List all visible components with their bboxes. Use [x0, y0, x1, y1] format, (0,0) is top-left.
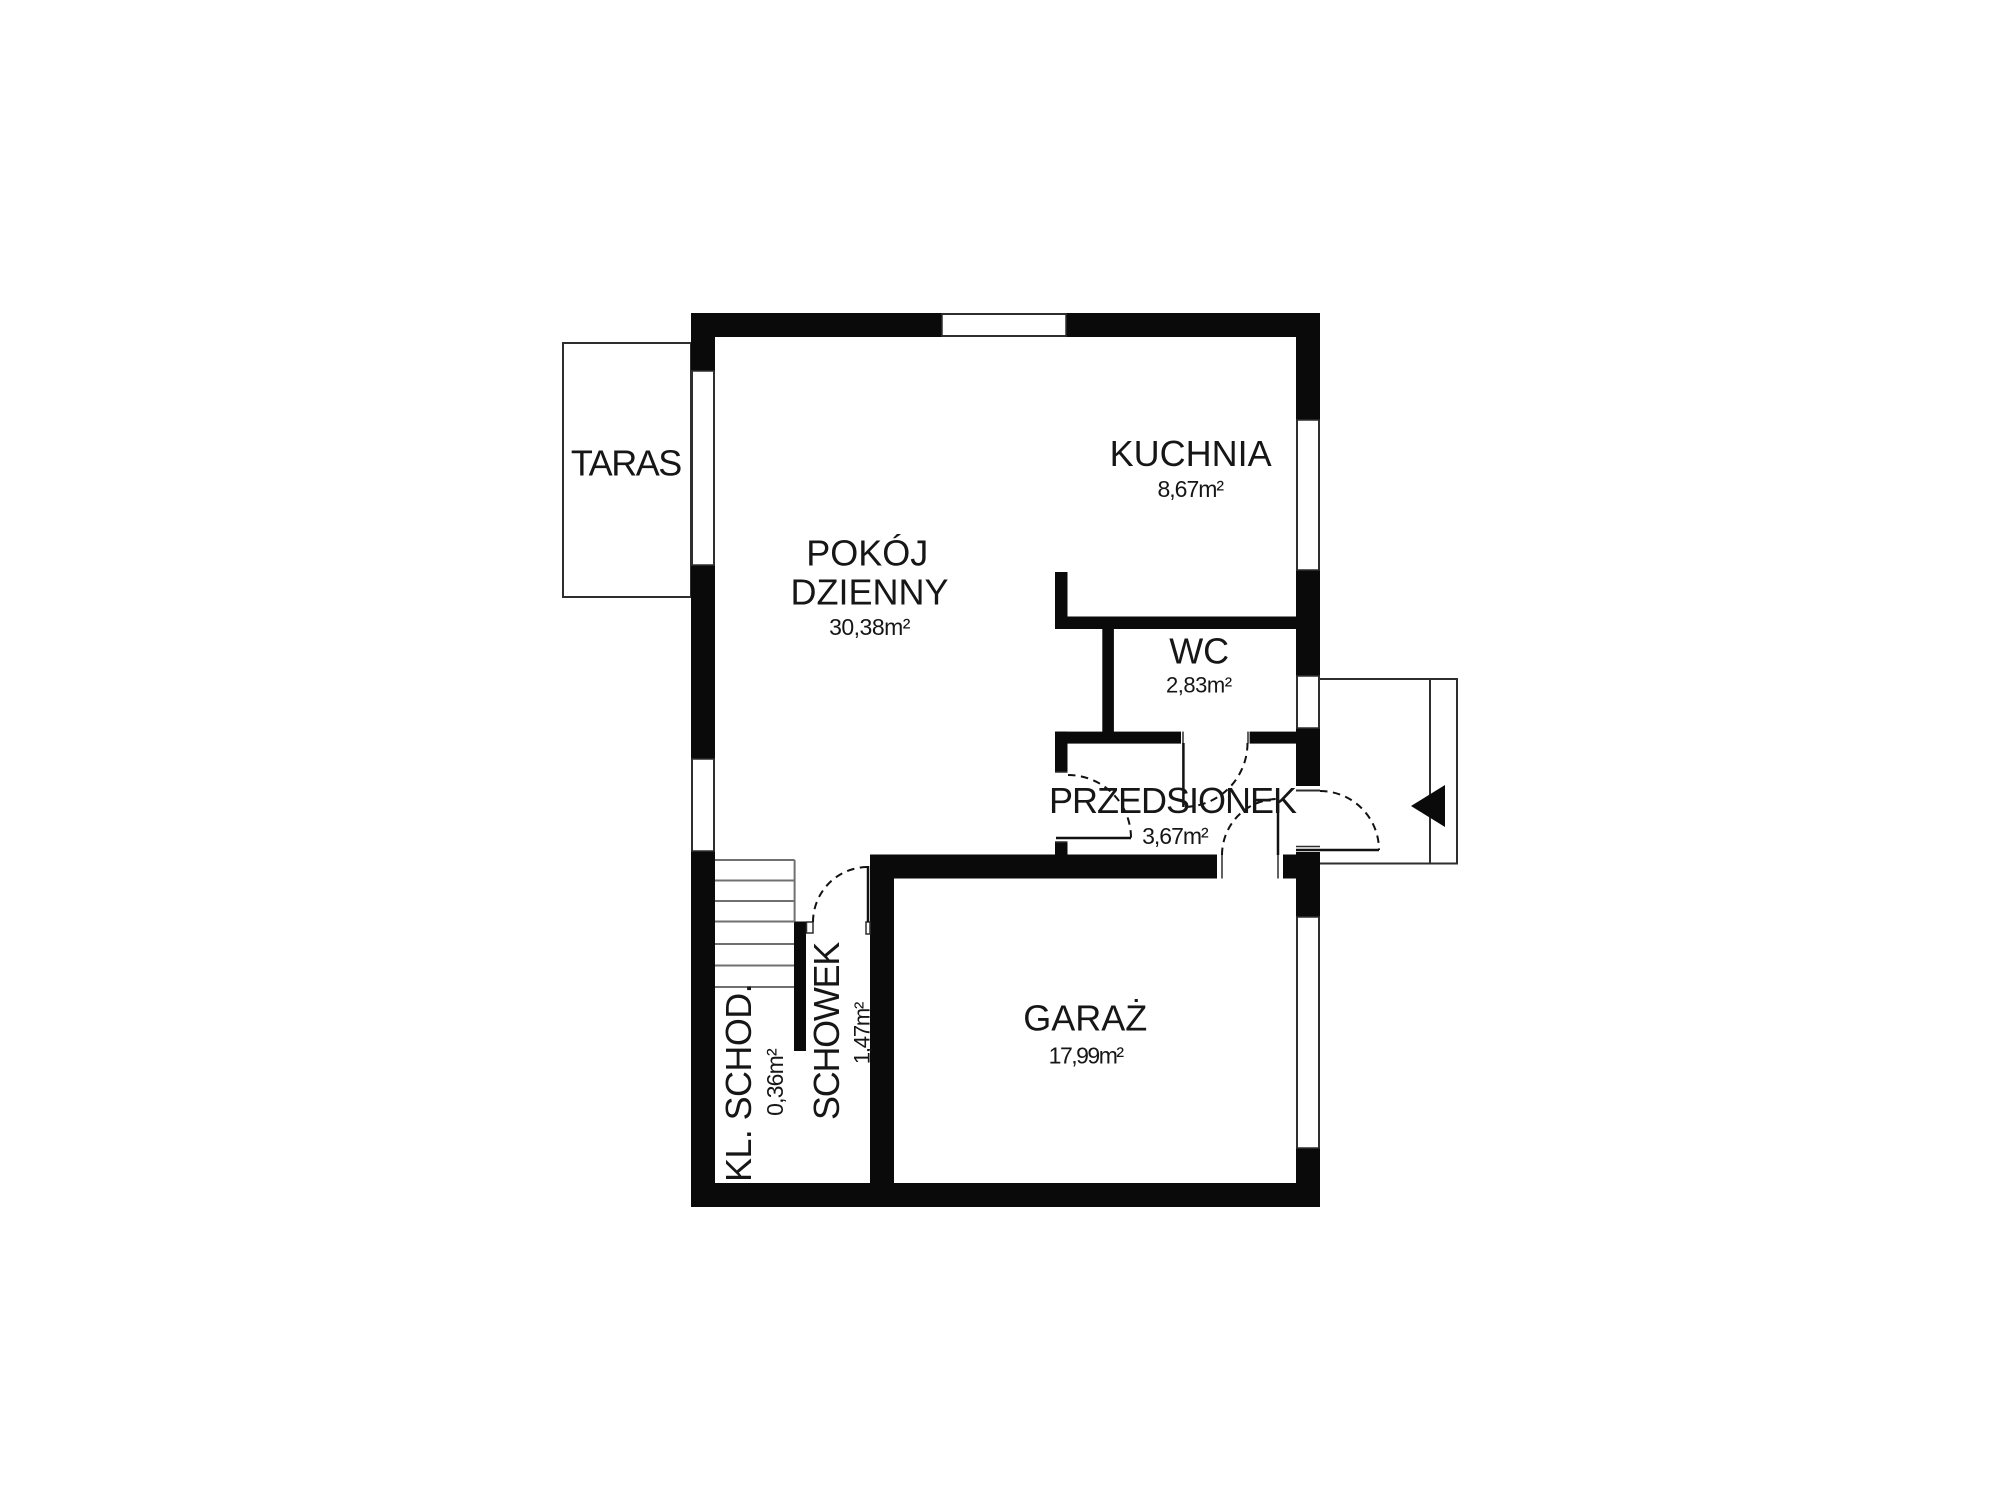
svg-text:1,47m²: 1,47m²: [850, 1002, 875, 1064]
svg-text:GARAŻ: GARAŻ: [1023, 998, 1147, 1039]
svg-text:PRZEDSIONEK: PRZEDSIONEK: [1049, 780, 1297, 821]
svg-text:30,38m²: 30,38m²: [829, 614, 911, 640]
svg-text:17,99m²: 17,99m²: [1049, 1043, 1125, 1069]
svg-text:8,67m²: 8,67m²: [1158, 476, 1225, 502]
svg-text:KL. SCHOD.: KL. SCHOD.: [718, 984, 759, 1182]
svg-text:SCHOWEK: SCHOWEK: [806, 942, 847, 1120]
svg-text:2,83m²: 2,83m²: [1166, 672, 1232, 697]
svg-text:POKÓJ: POKÓJ: [806, 532, 928, 573]
svg-text:KUCHNIA: KUCHNIA: [1110, 433, 1272, 474]
svg-text:TARAS: TARAS: [571, 442, 681, 483]
svg-text:0,36m²: 0,36m²: [762, 1048, 788, 1116]
svg-text:DZIENNY: DZIENNY: [790, 571, 948, 612]
svg-text:3,67m²: 3,67m²: [1142, 823, 1209, 849]
svg-text:WC: WC: [1169, 631, 1229, 672]
